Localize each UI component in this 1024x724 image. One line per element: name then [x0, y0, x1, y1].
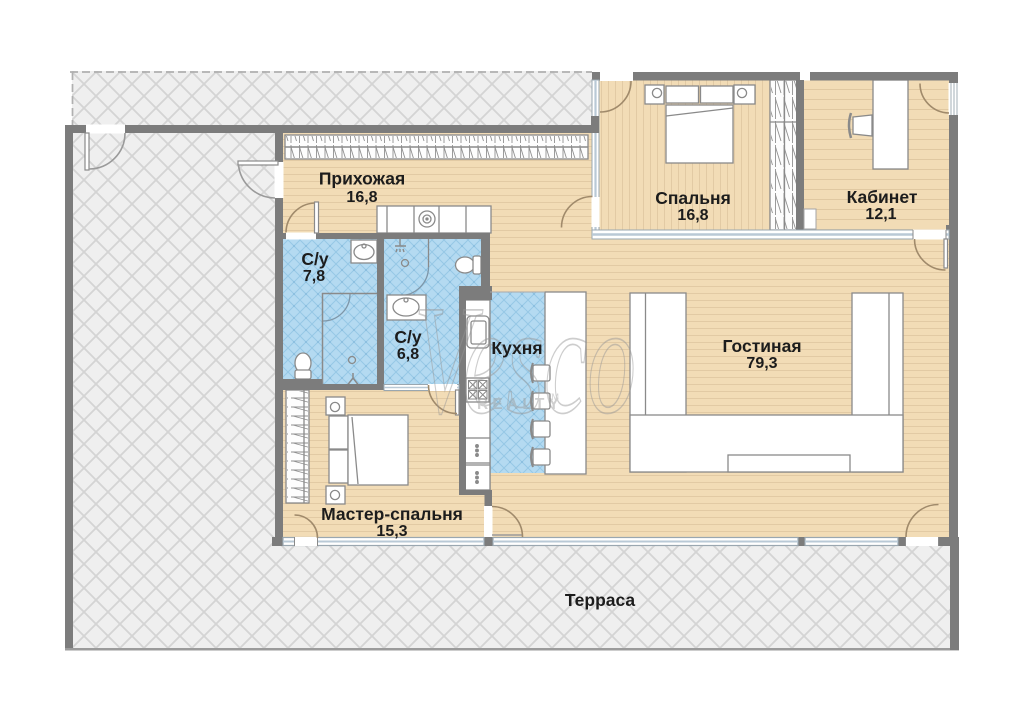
svg-text:С/у: С/у [394, 327, 422, 347]
svg-text:79,3: 79,3 [746, 355, 777, 372]
svg-text:Кухня: Кухня [491, 338, 542, 358]
svg-text:Спальня: Спальня [655, 188, 731, 208]
svg-text:TM: TM [546, 392, 559, 402]
svg-text:16,8: 16,8 [346, 189, 377, 206]
svg-text:15,3: 15,3 [376, 523, 407, 540]
svg-text:16,8: 16,8 [677, 207, 708, 224]
svg-text:Мастер-спальня: Мастер-спальня [321, 504, 463, 524]
svg-text:Кабинет: Кабинет [847, 187, 918, 207]
svg-text:12,1: 12,1 [865, 206, 896, 223]
svg-text:Прихожая: Прихожая [319, 169, 405, 189]
svg-text:Терраса: Терраса [565, 590, 636, 610]
svg-text:7,8: 7,8 [303, 268, 325, 285]
svg-text:6,8: 6,8 [397, 346, 419, 363]
svg-text:С/у: С/у [301, 249, 329, 269]
svg-text:Vesco: Vesco [414, 273, 636, 446]
svg-text:Гостиная: Гостиная [722, 336, 801, 356]
